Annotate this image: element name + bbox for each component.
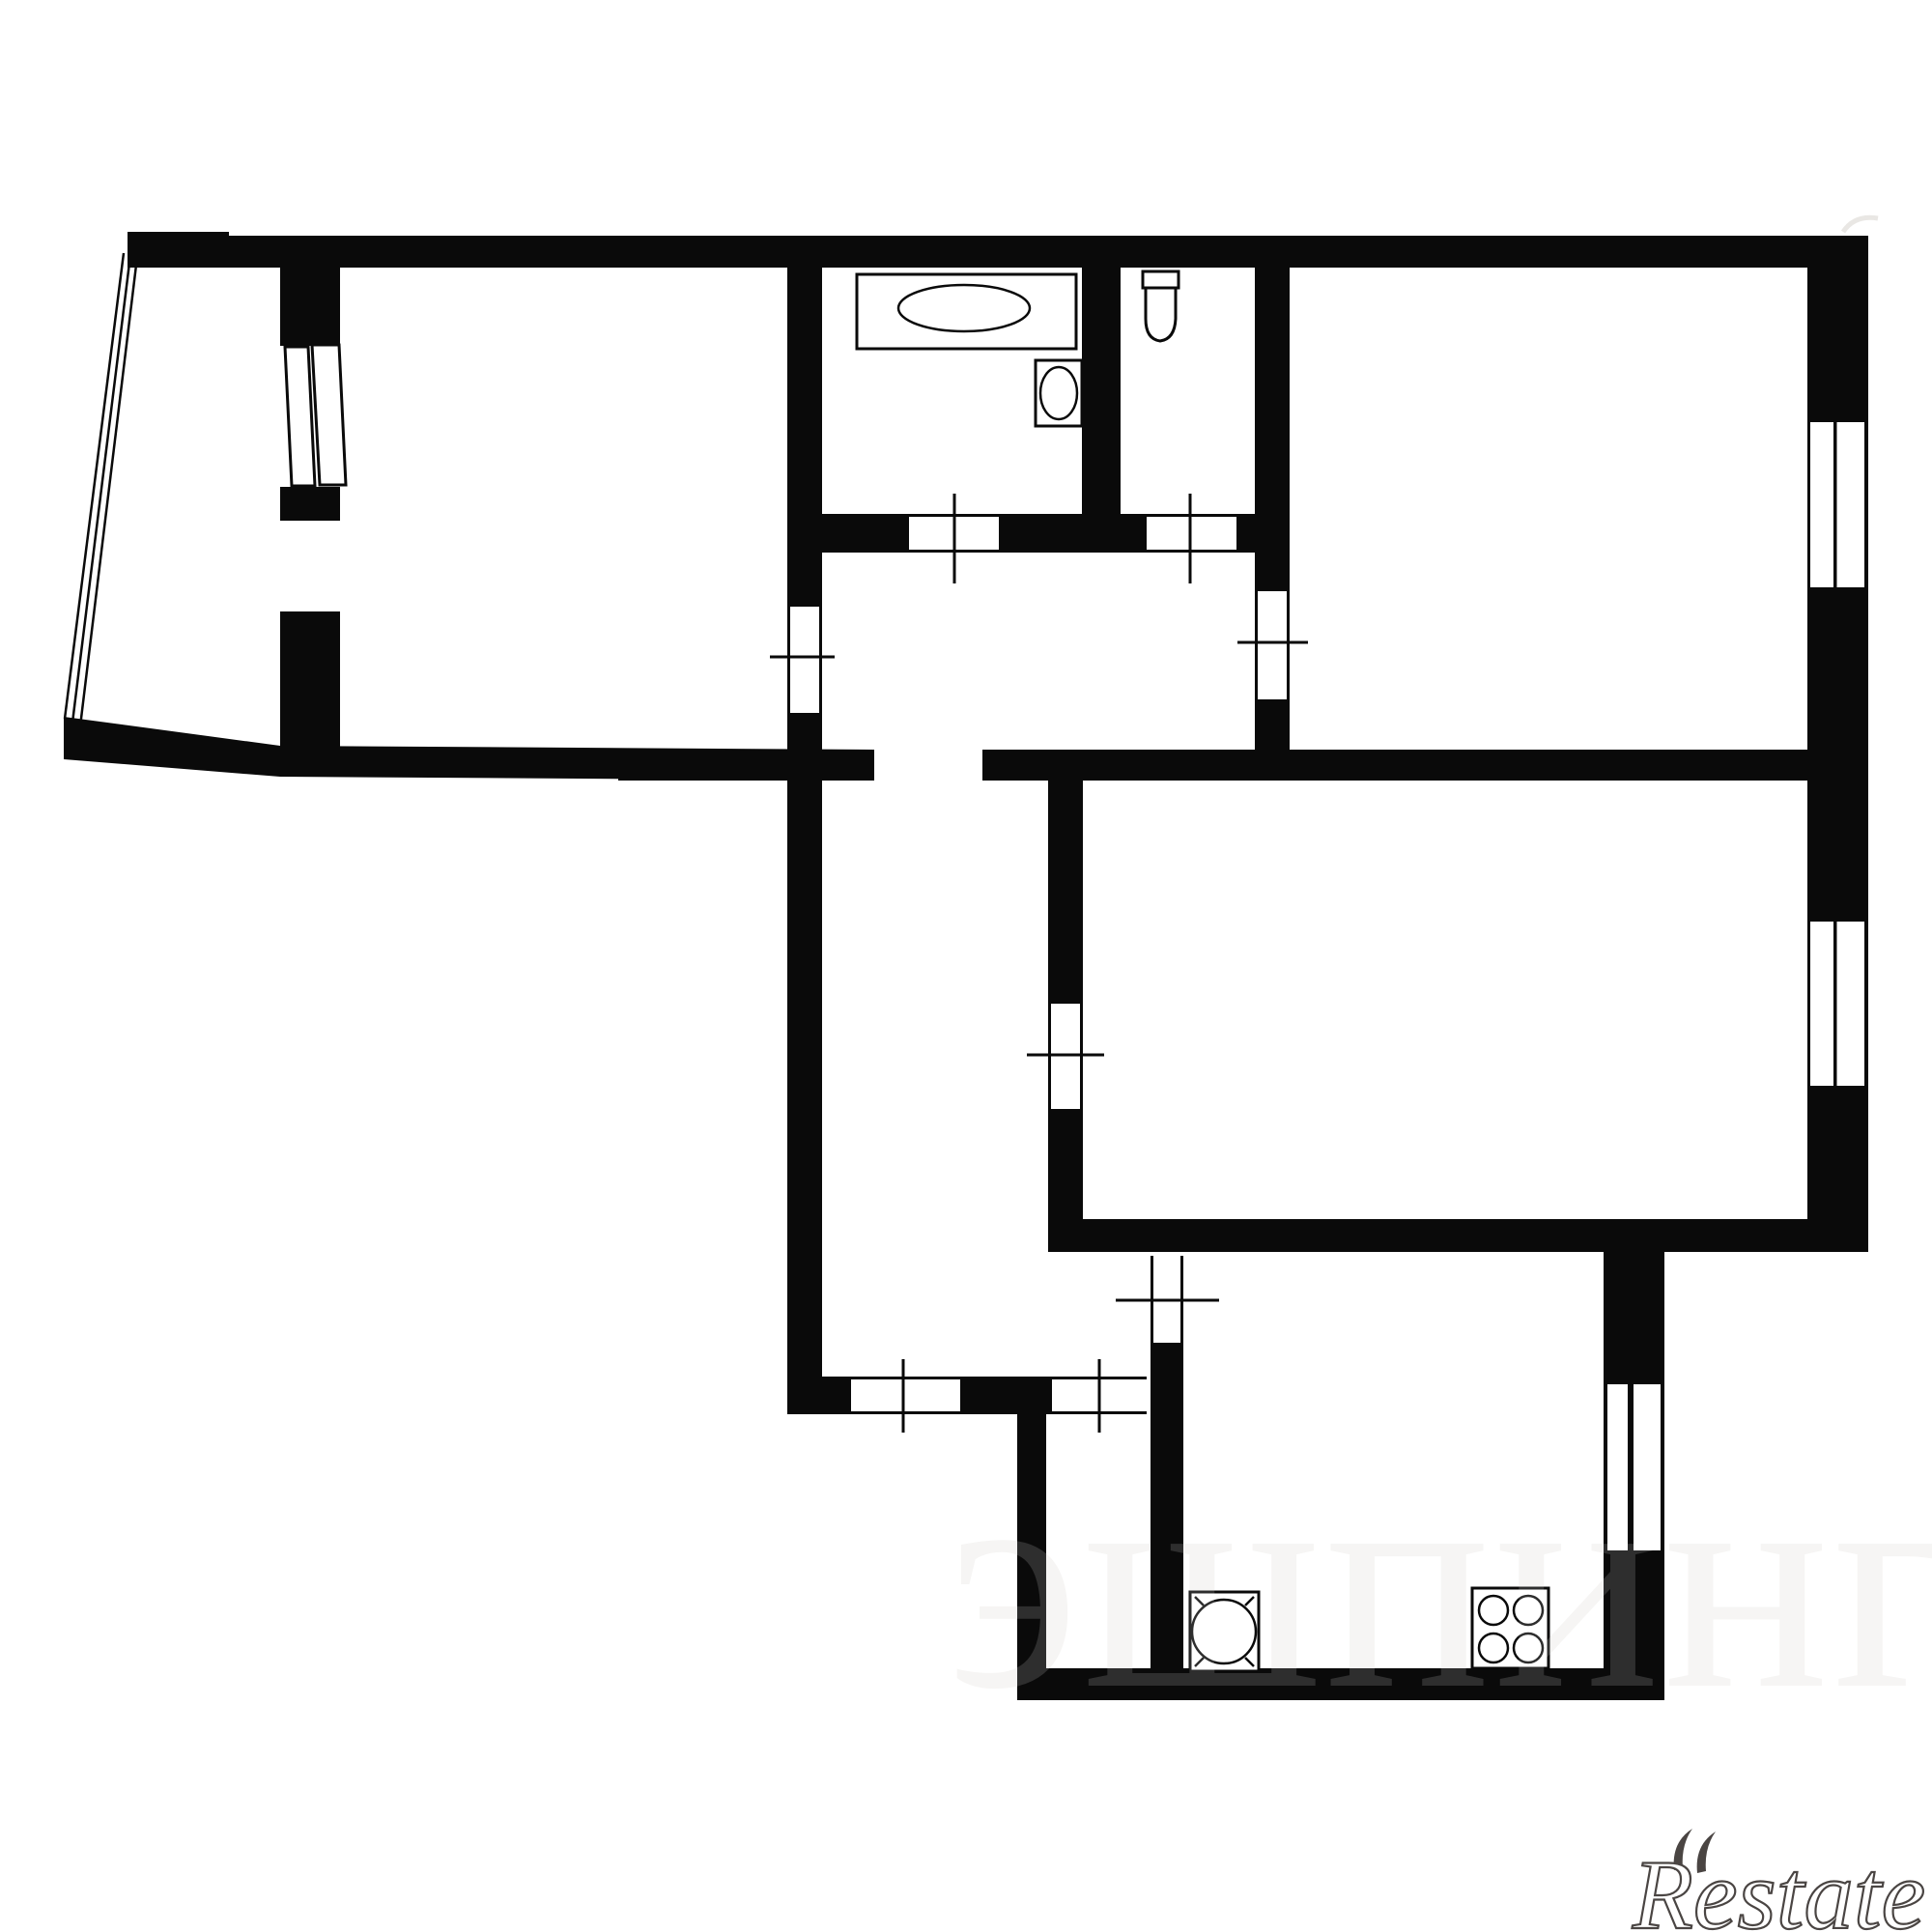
svg-text:эшпинг: эшпинг [947, 1411, 1932, 1753]
svg-text:Restate: Restate [1632, 1840, 1925, 1932]
